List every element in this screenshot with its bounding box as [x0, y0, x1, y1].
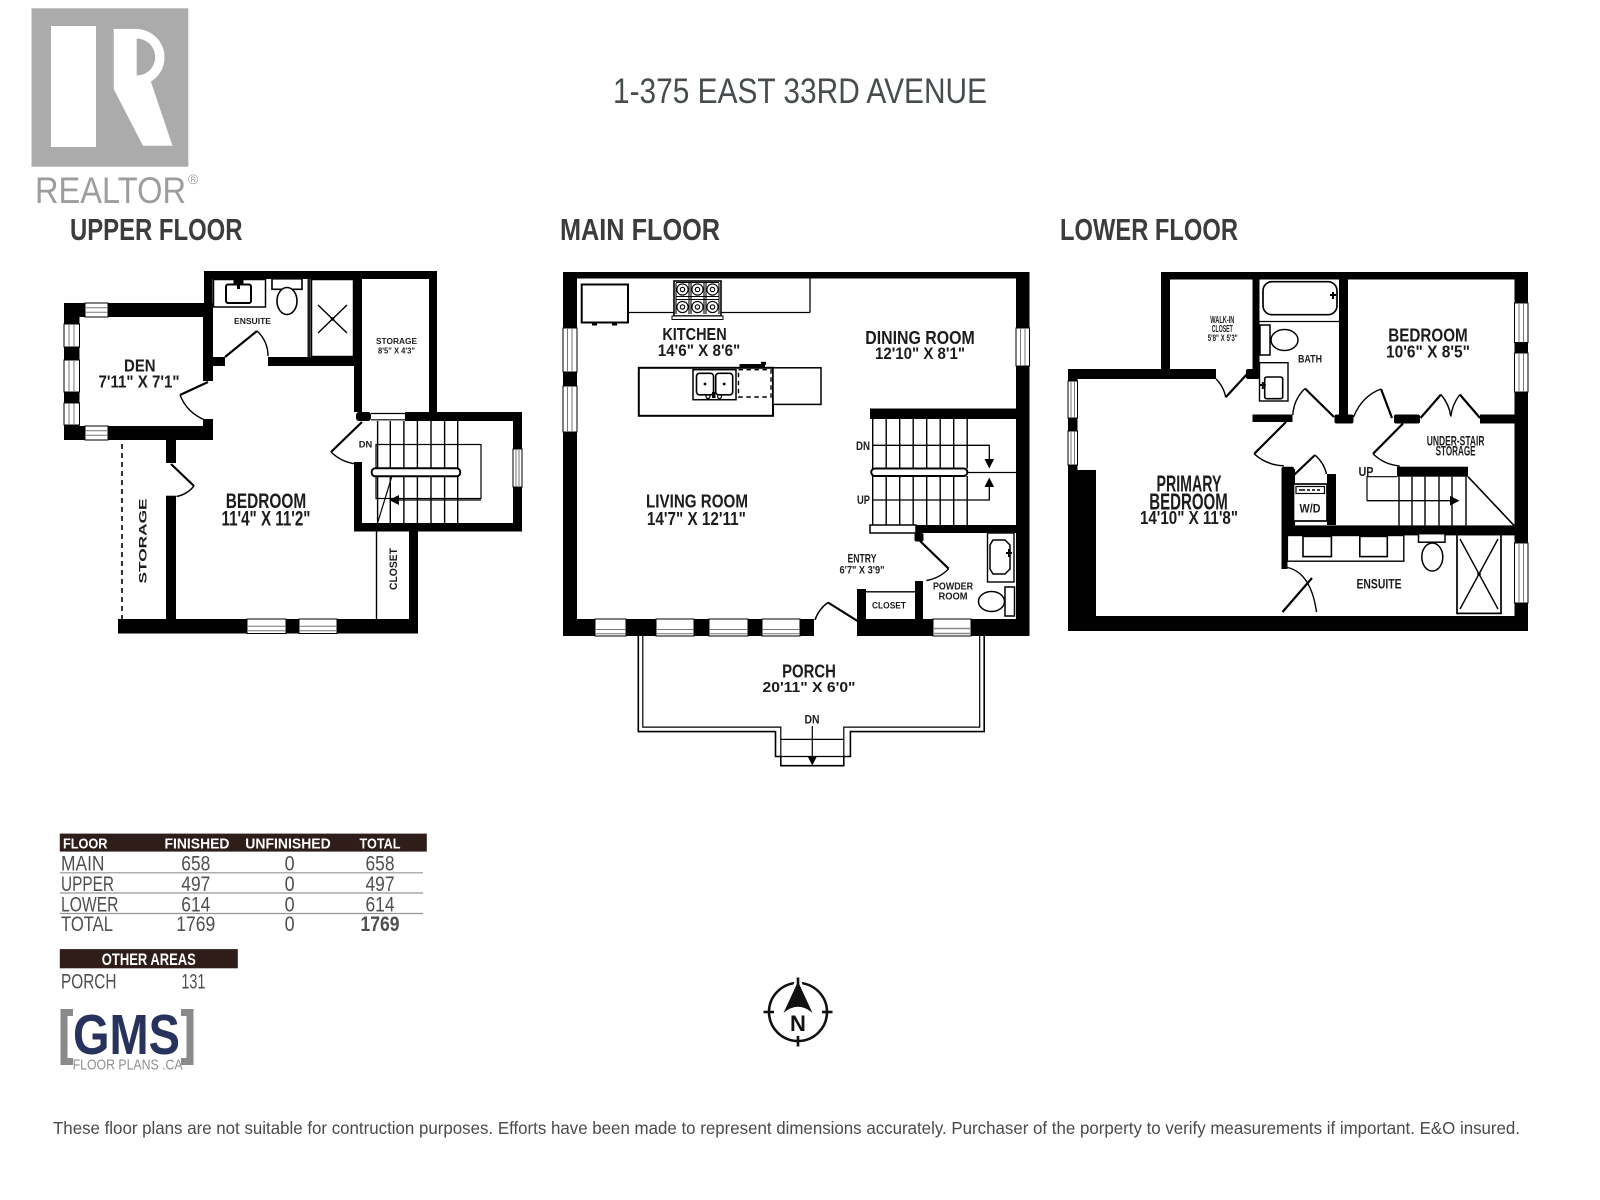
- svg-text:7'11" X 7'1": 7'11" X 7'1": [99, 372, 180, 392]
- svg-text:CLOSET: CLOSET: [872, 601, 906, 611]
- svg-text:STORAGE: STORAGE: [1436, 443, 1476, 459]
- svg-text:11'4" X 11'2": 11'4" X 11'2": [222, 505, 311, 530]
- svg-text:CLOSET: CLOSET: [388, 548, 400, 590]
- svg-text:8'5" X 4'3": 8'5" X 4'3": [378, 346, 415, 356]
- svg-text:FLOOR: FLOOR: [63, 836, 108, 853]
- svg-text:LOWER FLOOR: LOWER FLOOR: [1060, 212, 1238, 247]
- svg-text:1769: 1769: [361, 912, 400, 936]
- svg-text:These floor plans are not suit: These floor plans are not suitable for c…: [53, 1118, 1520, 1138]
- svg-text:STORAGE: STORAGE: [376, 336, 417, 346]
- svg-text:10'6" X 8'5": 10'6" X 8'5": [1386, 342, 1470, 362]
- svg-text:5'8" X 5'3": 5'8" X 5'3": [1208, 333, 1238, 343]
- svg-text:20'11" X 6'0": 20'11" X 6'0": [763, 680, 856, 696]
- svg-text:1769: 1769: [176, 912, 215, 936]
- svg-text:ENTRY: ENTRY: [848, 552, 877, 566]
- svg-text:W/D: W/D: [1300, 502, 1321, 516]
- svg-text:BATH: BATH: [1298, 354, 1322, 366]
- svg-text:TOTAL: TOTAL: [360, 836, 401, 853]
- svg-text:14'6" X 8'6": 14'6" X 8'6": [658, 342, 741, 360]
- svg-text:STORAGE: STORAGE: [138, 499, 150, 584]
- svg-text:DN: DN: [359, 440, 373, 451]
- svg-text:PORCH: PORCH: [782, 662, 836, 682]
- svg-text:ENSUITE: ENSUITE: [234, 316, 271, 326]
- svg-text:FINISHED: FINISHED: [165, 836, 230, 853]
- svg-text:N: N: [790, 1011, 806, 1036]
- svg-text:14'7" X 12'11": 14'7" X 12'11": [647, 508, 746, 529]
- svg-text:KITCHEN: KITCHEN: [662, 324, 726, 344]
- svg-text:1-375 EAST 33RD AVENUE: 1-375 EAST 33RD AVENUE: [613, 72, 987, 111]
- svg-text:6'7" X 3'9": 6'7" X 3'9": [840, 565, 885, 577]
- svg-text:12'10" X 8'1": 12'10" X 8'1": [875, 345, 965, 363]
- svg-text:UP: UP: [857, 493, 870, 507]
- svg-text:REALTOR: REALTOR: [35, 170, 186, 211]
- svg-text:UNFINISHED: UNFINISHED: [245, 836, 331, 853]
- svg-text:®: ®: [188, 171, 199, 187]
- svg-text:DN: DN: [805, 715, 820, 727]
- svg-text:OTHER AREAS: OTHER AREAS: [102, 951, 196, 969]
- svg-text:ROOM: ROOM: [939, 591, 968, 602]
- svg-text:FLOOR PLANS .CA: FLOOR PLANS .CA: [73, 1057, 183, 1074]
- svg-text:MAIN FLOOR: MAIN FLOOR: [560, 212, 720, 247]
- svg-text:PORCH: PORCH: [61, 970, 117, 994]
- svg-text:14'10" X 11'8": 14'10" X 11'8": [1140, 508, 1238, 528]
- svg-text:ENSUITE: ENSUITE: [1357, 577, 1402, 592]
- svg-text:TOTAL: TOTAL: [61, 912, 113, 936]
- svg-text:UPPER FLOOR: UPPER FLOOR: [70, 212, 243, 247]
- svg-text:131: 131: [181, 970, 205, 994]
- svg-text:DN: DN: [856, 439, 870, 453]
- svg-text:0: 0: [285, 912, 295, 936]
